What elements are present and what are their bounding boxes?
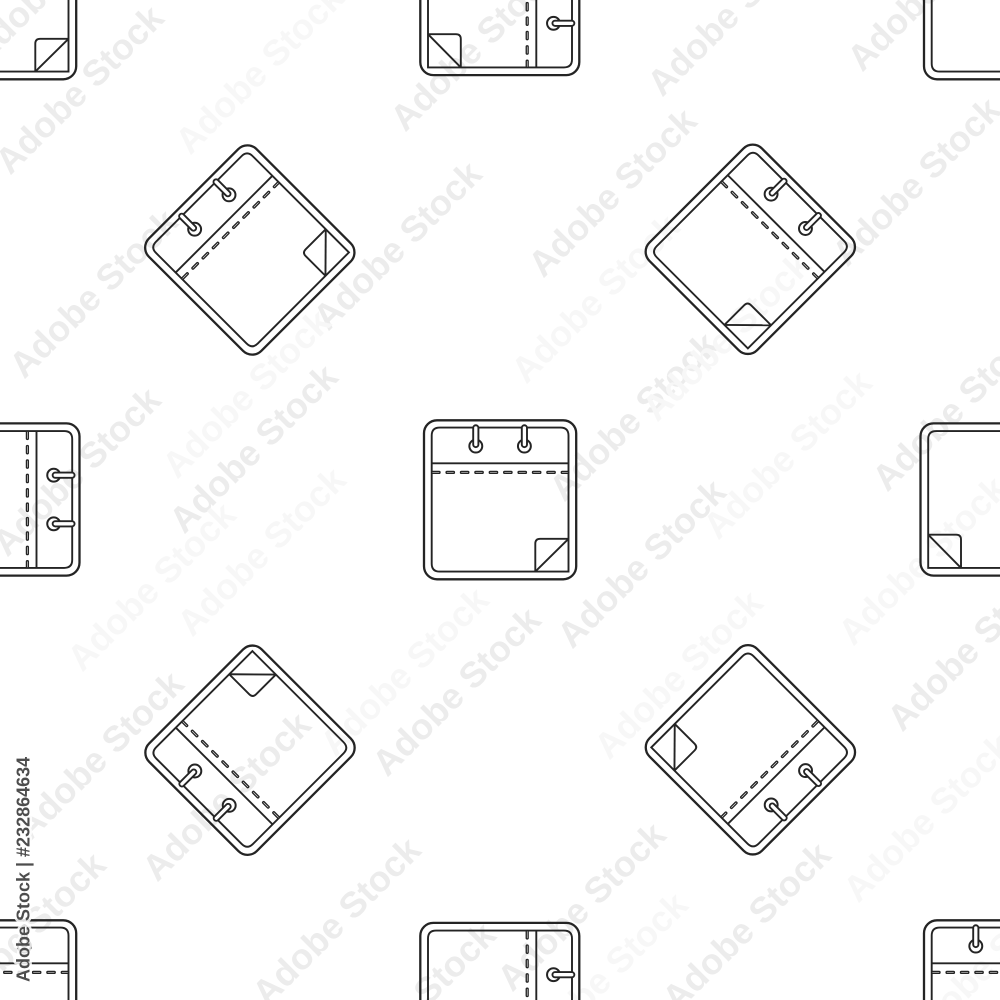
svg-text:Adobe Stock | #232864634: Adobe Stock | #232864634: [14, 757, 34, 982]
